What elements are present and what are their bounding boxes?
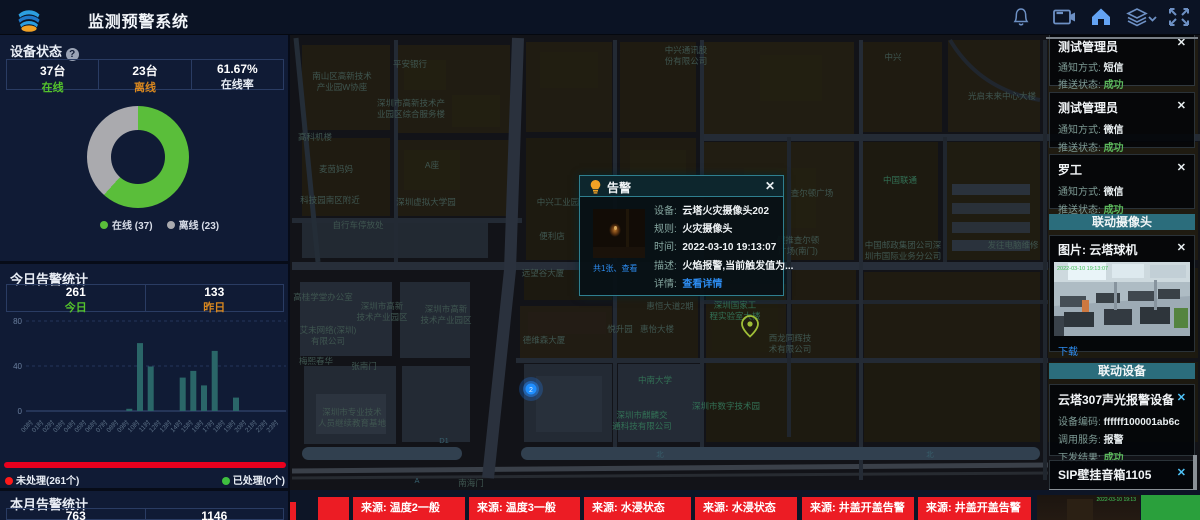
svg-text:远望谷大厦: 远望谷大厦 [522,268,565,278]
svg-text:技术产业园区: 技术产业园区 [356,312,408,322]
svg-text:深圳市专业技术: 深圳市专业技术 [322,407,382,417]
svg-text:南海门: 南海门 [458,478,484,488]
svg-text:有限公司: 有限公司 [311,336,345,346]
svg-text:深圳虚拟大学园: 深圳虚拟大学园 [396,197,456,207]
svg-text:中国联通: 中国联通 [883,175,918,185]
svg-text:北: 北 [656,450,664,459]
svg-text:80: 80 [13,317,22,326]
svg-text:惠怡大楼: 惠怡大楼 [640,324,675,334]
svg-text:惠恒大道2期: 惠恒大道2期 [646,301,693,311]
svg-text:深圳市高新技术产: 深圳市高新技术产 [377,98,445,108]
svg-text:光启未来中心大楼: 光启未来中心大楼 [968,91,1037,101]
svg-text:圳市国际业务分公司: 圳市国际业务分公司 [865,251,942,261]
svg-text:业园区综合服务楼: 业园区综合服务楼 [377,109,446,119]
svg-text:高桂学堂办公室: 高桂学堂办公室 [293,292,353,302]
svg-text:0: 0 [18,407,23,416]
svg-text:术有限公司: 术有限公司 [769,344,812,354]
svg-text:A座: A座 [425,160,440,170]
svg-text:发往电脑维修: 发往电脑维修 [987,240,1039,250]
svg-text:2: 2 [529,387,533,394]
svg-text:深圳市麒麟交: 深圳市麒麟交 [616,410,668,420]
svg-text:通科技有限公司: 通科技有限公司 [612,421,672,431]
svg-text:德维森大厦: 德维森大厦 [523,335,566,345]
svg-text:技术产业园区: 技术产业园区 [420,315,472,325]
svg-text:A: A [414,476,419,485]
svg-text:40: 40 [13,362,22,371]
svg-text:便利店: 便利店 [539,231,565,241]
svg-text:南山区高新技术: 南山区高新技术 [312,71,372,81]
svg-text:中国邮政集团公司深: 中国邮政集团公司深 [865,240,942,250]
svg-text:中兴通讯股: 中兴通讯股 [665,45,708,55]
svg-text:悦升园: 悦升园 [607,324,633,334]
svg-text:份有限公司: 份有限公司 [665,56,708,66]
svg-text:梅熙春华: 梅熙春华 [299,356,334,366]
svg-text:平安银行: 平安银行 [393,59,428,69]
svg-text:中兴: 中兴 [884,52,902,62]
svg-text:高科机楼: 高科机楼 [298,132,333,142]
svg-text:麦茵妈妈: 麦茵妈妈 [319,164,353,174]
svg-text:自行车停放处: 自行车停放处 [332,220,384,230]
svg-text:深圳市高新: 深圳市高新 [425,304,468,314]
svg-text:D1: D1 [439,436,449,445]
svg-text:深圳市数字技术园: 深圳市数字技术园 [692,401,760,411]
svg-text:科技园南区附近: 科技园南区附近 [300,195,360,205]
svg-text:中兴工业园: 中兴工业园 [537,197,580,207]
svg-text:张南门: 张南门 [351,361,377,371]
svg-text:北: 北 [926,450,934,459]
svg-text:艾未网络(深圳): 艾未网络(深圳) [300,325,357,335]
svg-text:深圳国家工: 深圳国家工 [714,300,757,310]
svg-text:2022-03-10 19:13:07: 2022-03-10 19:13:07 [1057,266,1108,272]
svg-text:人员继续教育基地: 人员继续教育基地 [318,418,387,428]
svg-text:产业园W协座: 产业园W协座 [317,82,368,92]
svg-text:中南大学: 中南大学 [638,375,673,385]
svg-text:查尔顿广场: 查尔顿广场 [791,188,834,198]
svg-text:深圳市高新: 深圳市高新 [361,301,404,311]
svg-text:西龙同辉技: 西龙同辉技 [769,333,812,343]
